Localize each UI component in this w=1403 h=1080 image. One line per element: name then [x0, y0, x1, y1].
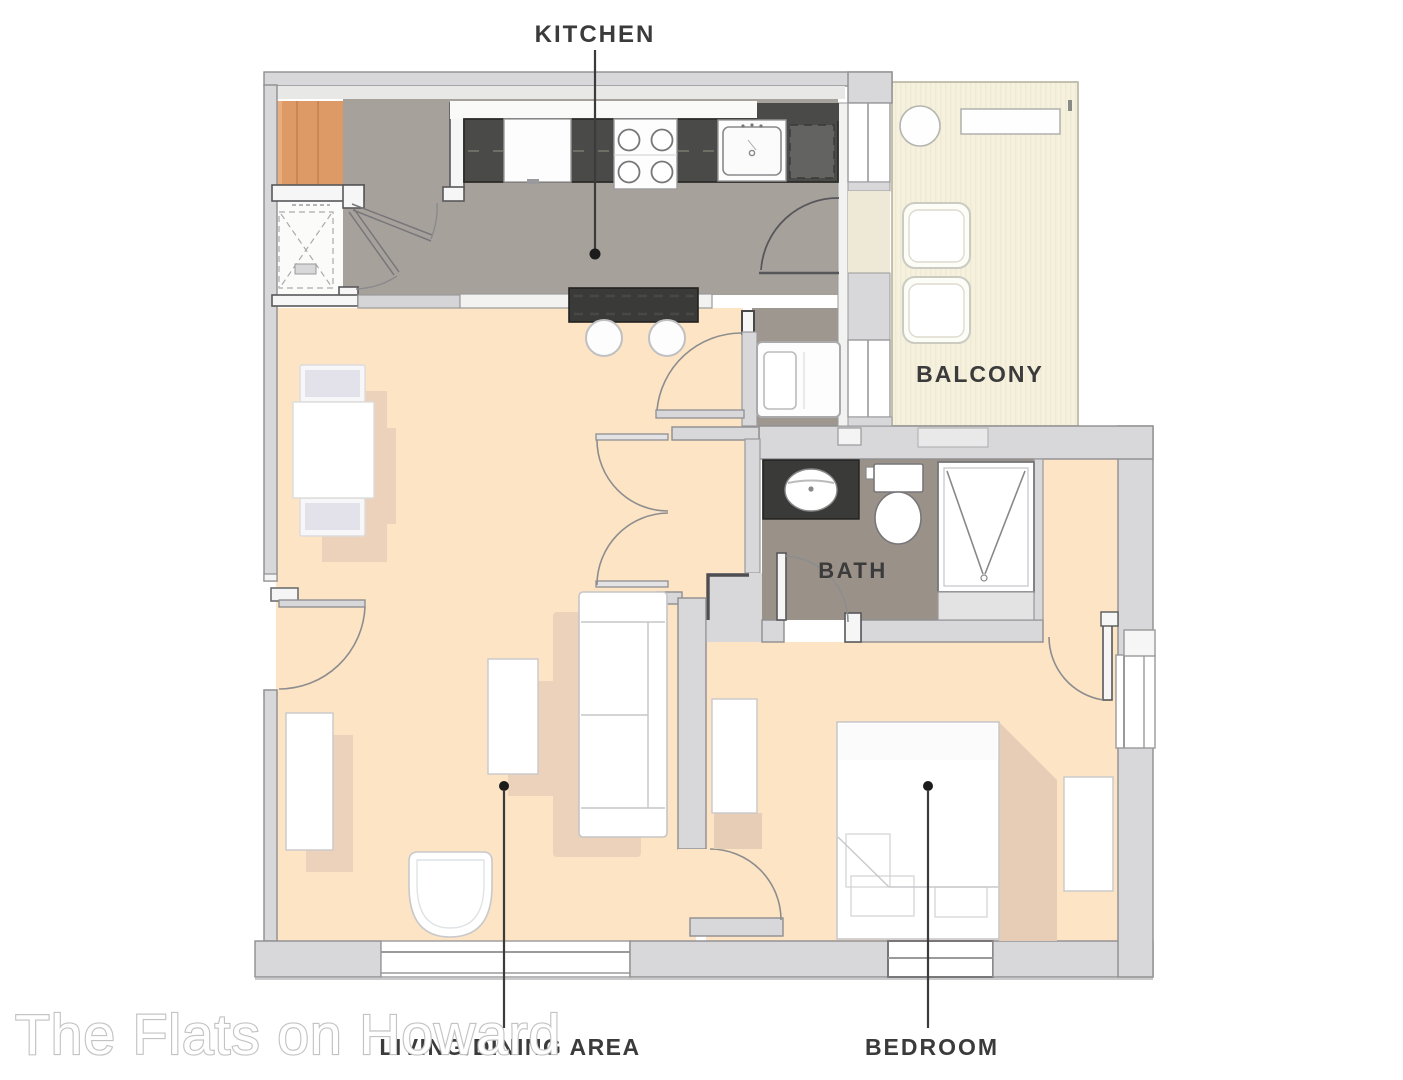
svg-text:The Flats on Howard: The Flats on Howard [15, 1003, 561, 1067]
svg-text:BALCONY: BALCONY [916, 361, 1044, 387]
svg-text:BATH: BATH [818, 558, 887, 583]
svg-text:BEDROOM: BEDROOM [865, 1034, 999, 1060]
svg-text:KITCHEN: KITCHEN [535, 21, 656, 48]
